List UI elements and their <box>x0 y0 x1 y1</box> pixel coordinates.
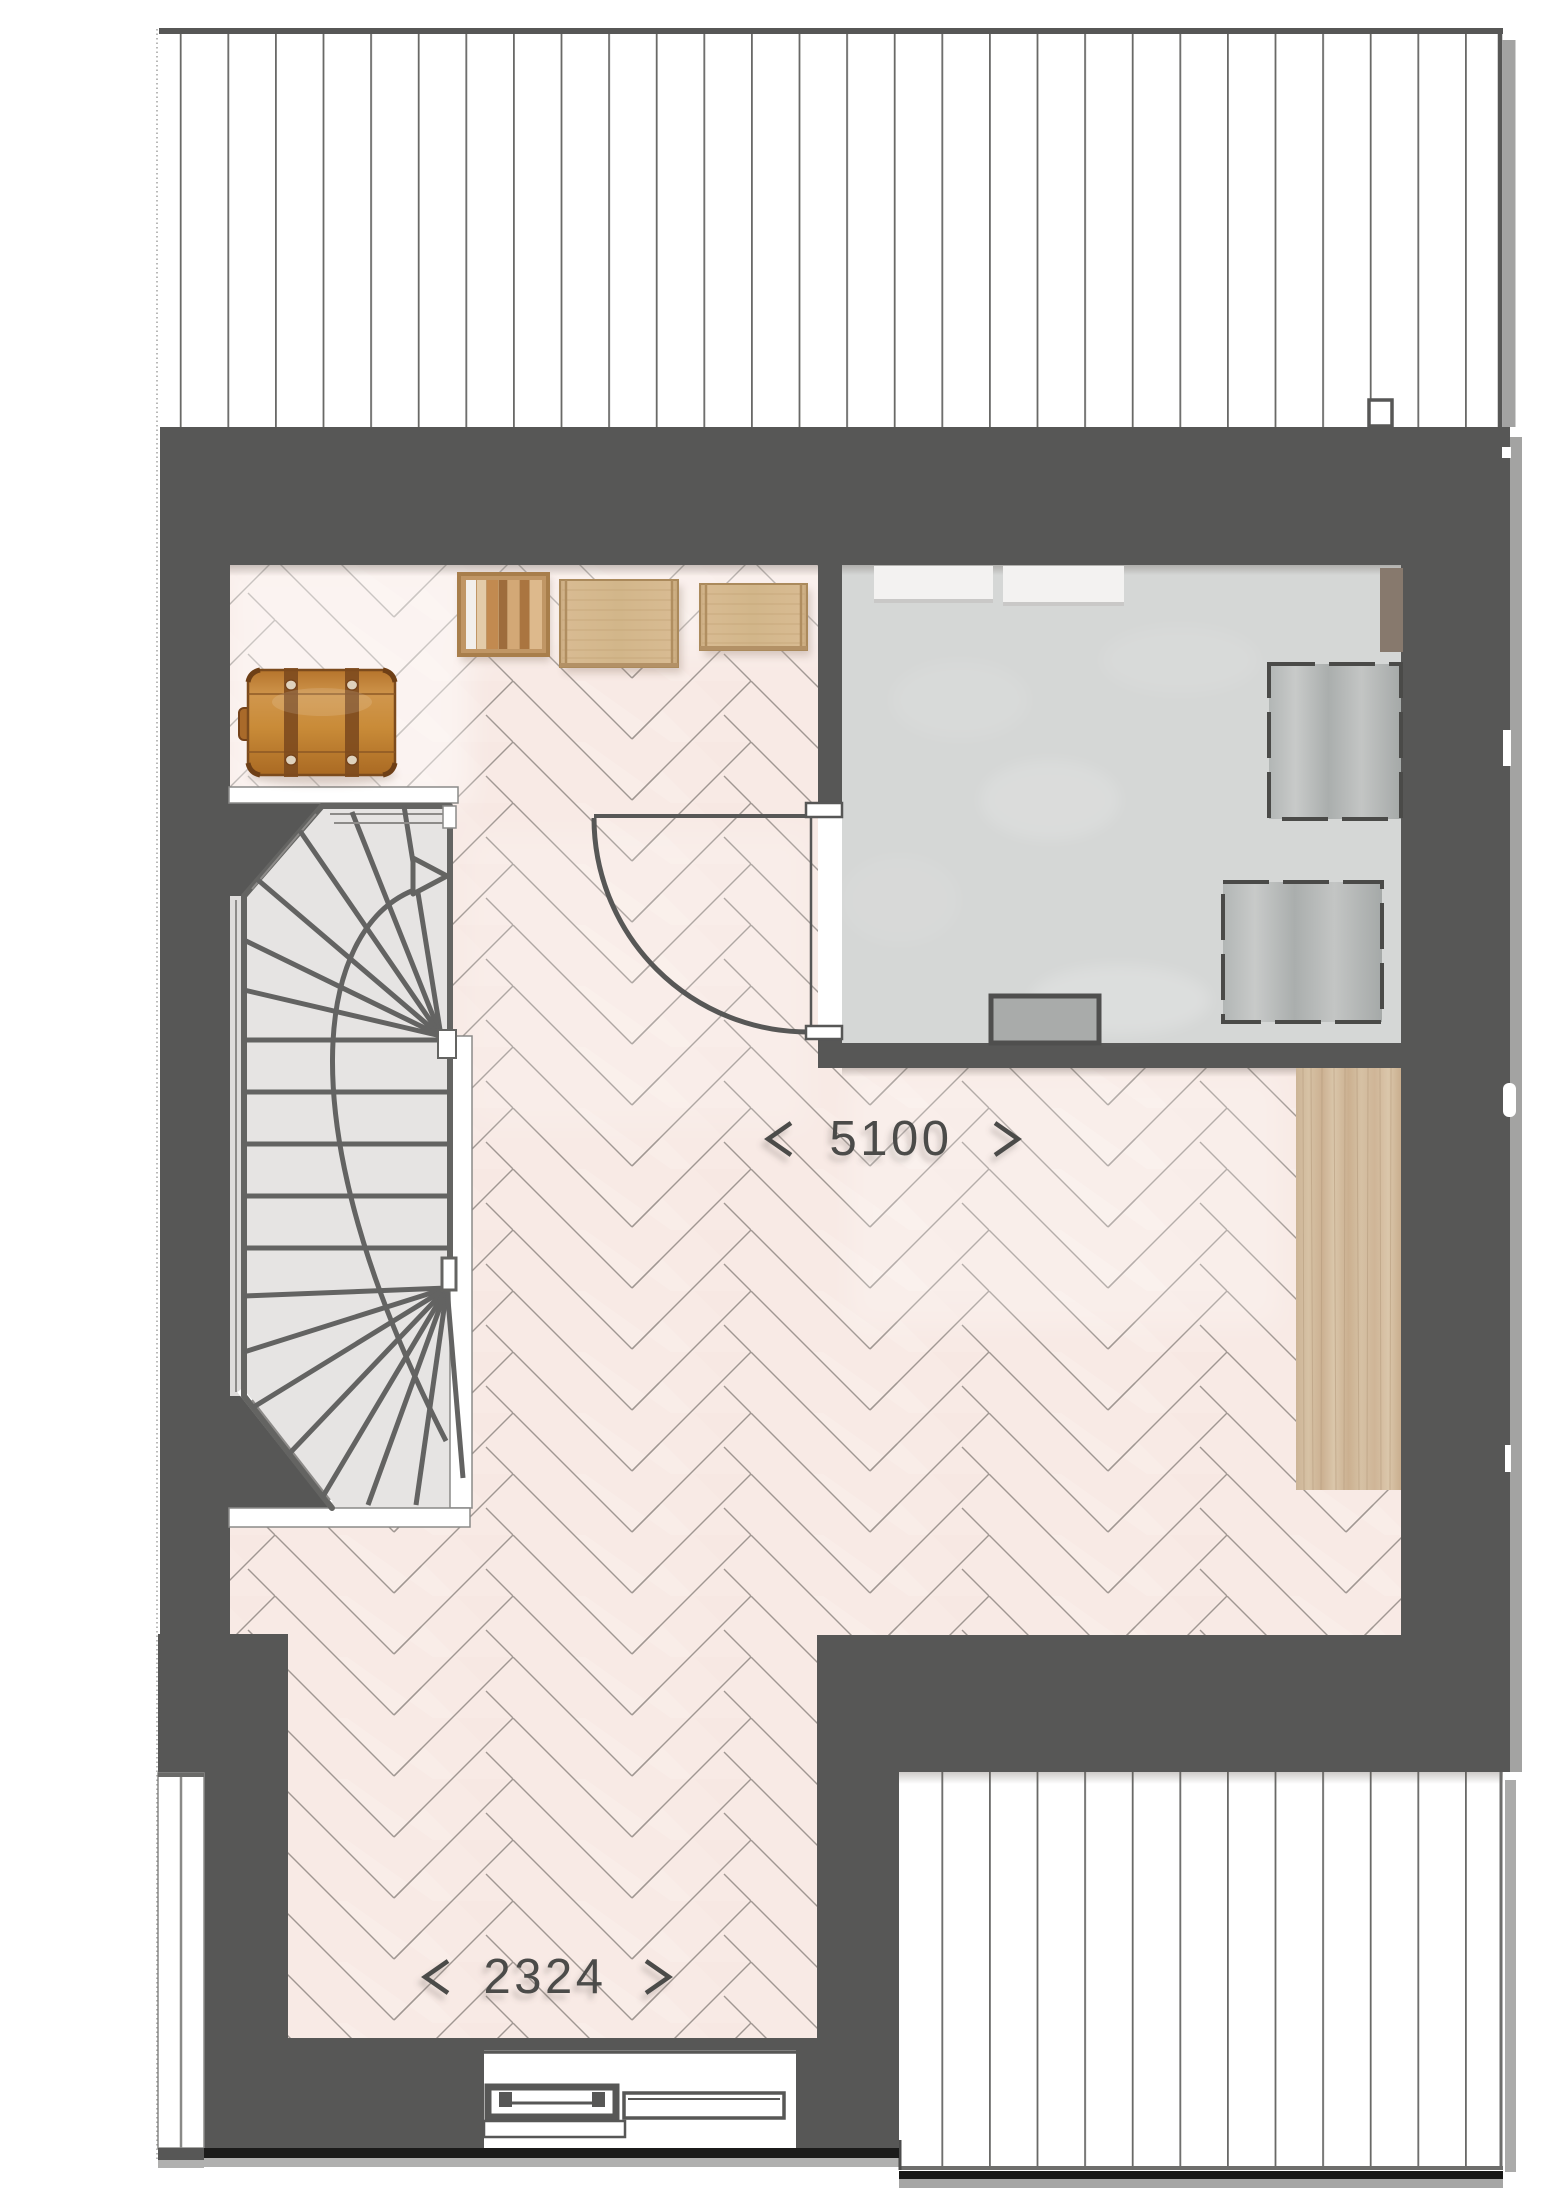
svg-text:5100: 5100 <box>829 1112 952 1166</box>
svg-text:2324: 2324 <box>483 1950 606 2004</box>
